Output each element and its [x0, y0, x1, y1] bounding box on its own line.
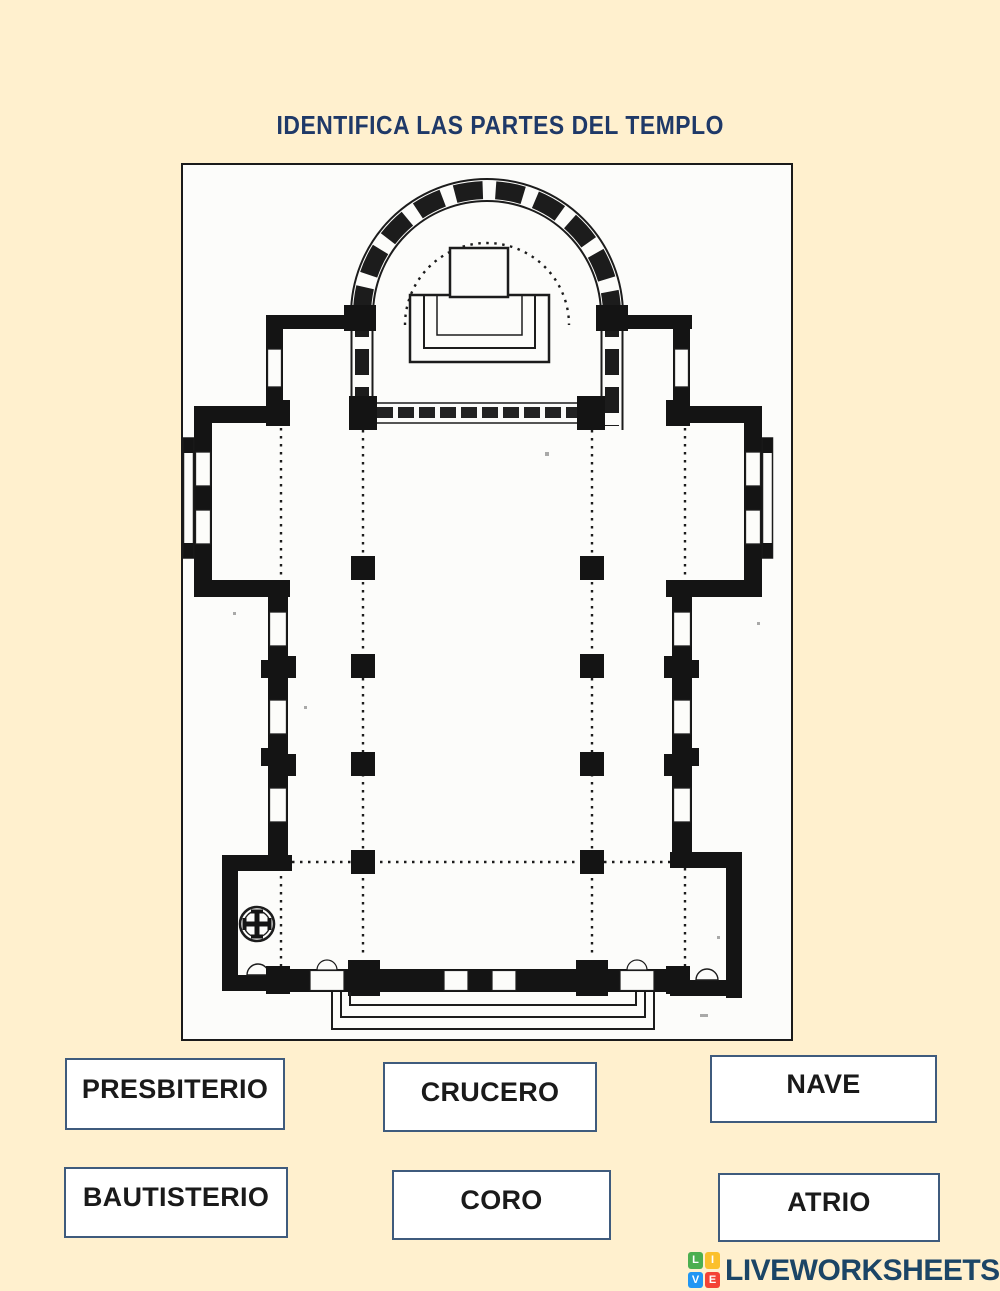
- answer-box-atrio[interactable]: ATRIO: [718, 1173, 940, 1242]
- chancel-band: [349, 396, 605, 430]
- entrance-steps: [332, 992, 654, 1029]
- colonnade-dotted-lines: [281, 243, 685, 976]
- answer-box-presbiterio[interactable]: PRESBITERIO: [65, 1058, 285, 1130]
- facade-wall: [266, 960, 690, 996]
- logo-tile-e: E: [705, 1272, 720, 1289]
- right-transept-arm: [666, 400, 773, 597]
- left-transept-arm: [184, 400, 291, 597]
- answer-box-coro[interactable]: CORO: [392, 1170, 611, 1240]
- liveworksheets-logo-icon: L I V E: [688, 1252, 722, 1289]
- worksheet-page: { "page": { "background_color": "#FFF0CE…: [0, 0, 1000, 1291]
- answer-box-bautisterio[interactable]: BAUTISTERIO: [64, 1167, 288, 1238]
- choir-and-altar: [410, 248, 549, 362]
- liveworksheets-logo-text: LIVEWORKSHEETS: [725, 1252, 1000, 1289]
- liveworksheets-branding: L I V E LIVEWORKSHEETS: [688, 1252, 1000, 1289]
- floorplan-drop-area[interactable]: [181, 163, 793, 1041]
- apse: [344, 179, 628, 430]
- nave-side-walls: [261, 589, 699, 855]
- church-floorplan-drawing: [183, 165, 791, 1039]
- crossing-walls: [266, 315, 692, 425]
- nave-pillars: [351, 556, 604, 874]
- answer-box-crucero[interactable]: CRUCERO: [383, 1062, 597, 1132]
- logo-tile-v: V: [688, 1272, 703, 1289]
- page-title: IDENTIFICA LAS PARTES DEL TEMPLO: [0, 110, 1000, 141]
- altar: [450, 248, 508, 297]
- baptismal-font-cross-icon: [240, 907, 274, 941]
- logo-tile-l: L: [688, 1252, 703, 1269]
- answer-box-nave[interactable]: NAVE: [710, 1055, 937, 1123]
- logo-tile-i: I: [705, 1252, 720, 1269]
